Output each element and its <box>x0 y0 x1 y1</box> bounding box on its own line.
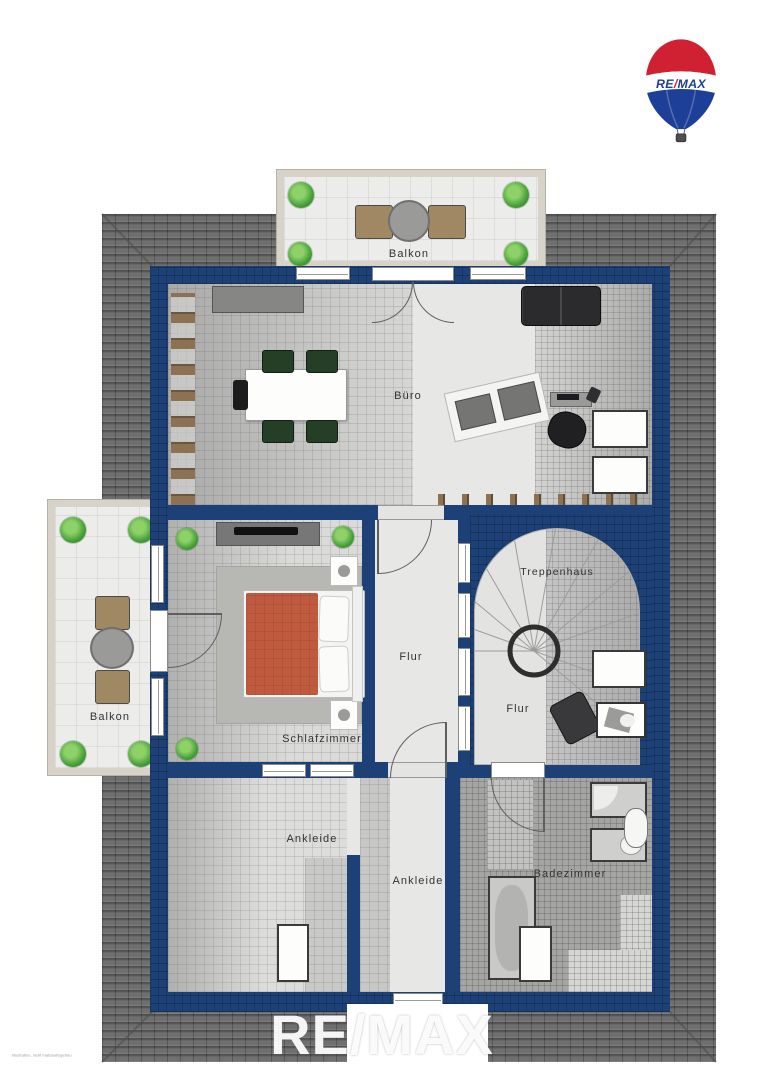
balcony-chair <box>95 670 130 704</box>
door-opening <box>378 505 444 520</box>
plant <box>288 182 314 208</box>
remax-watermark: RE/MAX <box>270 1002 494 1067</box>
plant <box>503 182 529 208</box>
nightstand-lamp <box>338 565 350 577</box>
balcony-door-threshold <box>372 267 454 281</box>
plant <box>504 242 528 266</box>
badezimmer-light-zone <box>568 950 652 992</box>
window <box>470 267 526 280</box>
plant <box>332 526 354 548</box>
balcony-chair <box>95 596 130 630</box>
ankleide-left-slope <box>168 778 266 992</box>
plant <box>288 242 312 266</box>
room-label-ankleide-left: Ankleide <box>287 833 338 845</box>
chair <box>306 350 338 373</box>
floorplan-page: Balkon Balkon Büro <box>0 0 764 1080</box>
wall <box>445 778 460 992</box>
balcony-table <box>90 627 134 669</box>
bed-duvet <box>246 593 318 695</box>
bed-headboard <box>352 586 363 702</box>
chair <box>306 420 338 443</box>
tv <box>234 527 298 535</box>
door-opening <box>491 762 545 778</box>
room-label-flur: Flur <box>399 651 422 663</box>
skylight <box>592 650 646 688</box>
window <box>262 764 306 777</box>
room-label-ankleide-right: Ankleide <box>393 875 444 887</box>
buero-sideboard <box>212 286 304 313</box>
skylight <box>592 456 648 494</box>
roof-window-pane <box>455 393 497 430</box>
roof-window-pane <box>497 381 541 421</box>
room-label-balkon-left: Balkon <box>90 711 130 723</box>
window <box>151 678 164 736</box>
chair <box>262 420 294 443</box>
window <box>296 267 350 280</box>
toilet <box>624 808 648 848</box>
badezimmer-light-zone <box>620 895 652 955</box>
side-table <box>596 702 646 738</box>
plant <box>176 738 198 760</box>
room-label-buero: Büro <box>394 390 422 402</box>
fine-print: Illustration, nicht maßstabsgetreu <box>12 1053 72 1058</box>
window <box>310 764 354 777</box>
dining-table <box>245 369 347 421</box>
monitor <box>557 394 579 400</box>
balcony-table <box>388 200 430 242</box>
wall <box>347 855 360 992</box>
ankleide-left-shade <box>305 858 347 992</box>
room-label-balkon-top: Balkon <box>389 248 429 260</box>
balcony-chair <box>428 205 466 239</box>
shower-tray <box>594 786 618 810</box>
nightstand-lamp <box>338 709 350 721</box>
plant <box>60 741 86 767</box>
balloon-top-red <box>646 39 716 75</box>
chair <box>262 350 294 373</box>
end-chair <box>233 380 248 410</box>
remax-balloon-logo: RE/MAX <box>638 34 724 146</box>
room-label-schlafzimmer: Schlafzimmer <box>282 733 362 745</box>
plant <box>176 528 198 550</box>
balcony-door-opening <box>150 610 168 672</box>
room-label-badezimmer: Badezimmer <box>534 868 607 880</box>
plant <box>60 517 86 543</box>
door-leaf <box>168 613 222 615</box>
bed-pillow <box>318 595 350 642</box>
skylight <box>592 410 648 448</box>
room-label-treppenhaus: Treppenhaus <box>520 566 594 578</box>
window <box>151 545 164 603</box>
skylight <box>277 924 309 982</box>
balloon-bottom-blue <box>647 89 715 129</box>
buero-wall-shelf <box>171 293 195 505</box>
svg-text:RE/MAX: RE/MAX <box>656 77 706 91</box>
balloon-basket <box>676 134 686 142</box>
bed-pillow <box>318 645 350 692</box>
door-leaf <box>377 520 379 574</box>
door-leaf <box>445 722 447 778</box>
room-label-flur-treppenhaus: Flur <box>506 703 529 715</box>
cushion <box>620 714 635 727</box>
skylight <box>519 926 552 982</box>
ankleide-right-shade <box>360 778 390 992</box>
sofa <box>521 286 601 326</box>
door-leaf <box>543 778 545 832</box>
